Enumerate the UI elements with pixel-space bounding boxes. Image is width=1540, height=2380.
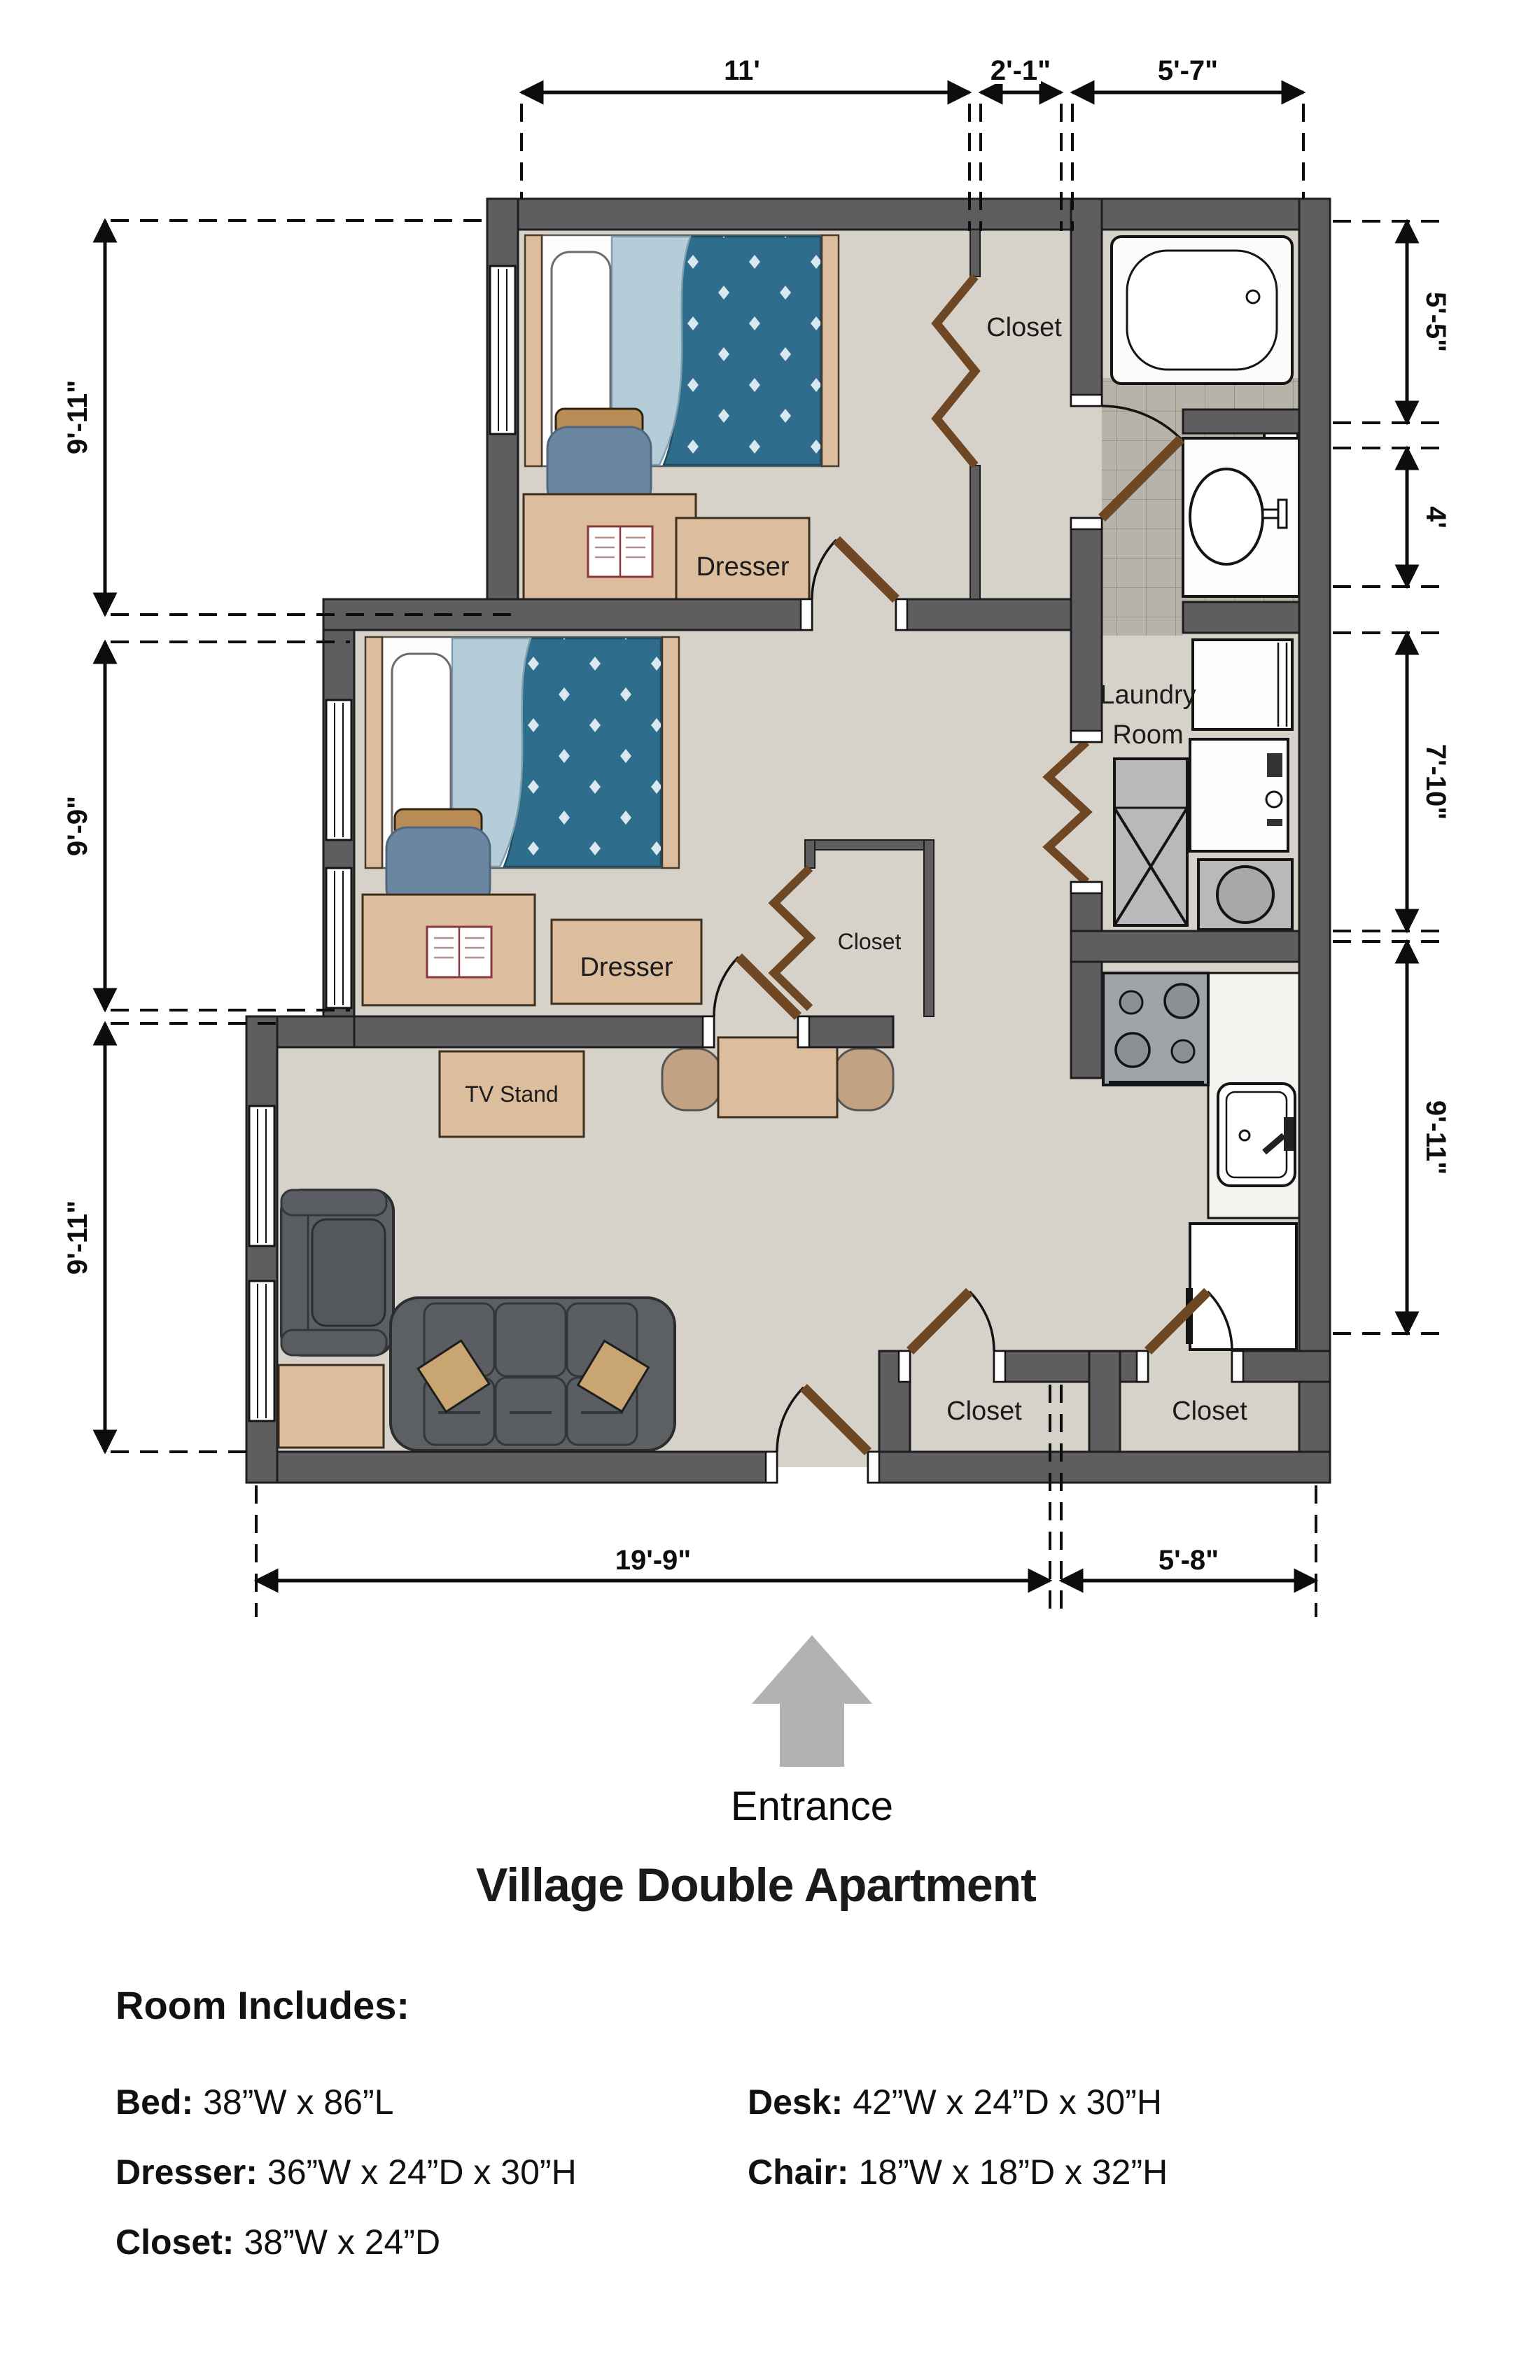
- dim-right-bath: 5'-5": [1420, 292, 1451, 352]
- dresser-bedroom1-label: Dresser: [696, 552, 789, 582]
- entrance: Entrance: [731, 1635, 893, 1829]
- legend-item-value: 18”W x 18”D x 32”H: [858, 2152, 1168, 2192]
- armchair: [281, 1190, 393, 1355]
- dresser-bedroom2-label: Dresser: [580, 953, 673, 982]
- bathtub-drain: [1247, 290, 1259, 303]
- wall-top: [490, 199, 1330, 230]
- wall-toilet-divider: [1183, 409, 1299, 433]
- laundry-label-line2: Room: [1112, 720, 1183, 750]
- dim-right-laundry: 7'-10": [1420, 744, 1451, 820]
- wall-bedroom2-living-b: [798, 1016, 893, 1047]
- legend-heading: Room Includes:: [115, 1983, 409, 2027]
- door-jamb: [1071, 731, 1102, 742]
- wall-closet-bedroom2-right: [924, 840, 934, 1016]
- legend-item-value: 38”W x 24”D: [244, 2222, 440, 2262]
- dining-chair-right: [834, 1049, 893, 1110]
- wall-closet-divider: [1089, 1351, 1120, 1452]
- wall-spine-stub: [1071, 962, 1102, 1078]
- door-jamb: [1232, 1351, 1243, 1382]
- tv-stand-label: TV Stand: [465, 1081, 558, 1107]
- window: [249, 1281, 274, 1421]
- legend-item-label: Dresser:: [115, 2152, 258, 2192]
- door-jamb: [896, 599, 907, 630]
- laundry-appliance: [1193, 640, 1292, 729]
- dining-table: [718, 1037, 837, 1117]
- utility-unit: [1114, 759, 1187, 925]
- page-title: Village Double Apartment: [476, 1858, 1036, 1912]
- dim-bottom-main: 19'-9": [615, 1545, 692, 1576]
- legend-item-bed: Bed:38”W x 86”L: [115, 2082, 393, 2122]
- closet-bedroom2-label: Closet: [838, 929, 902, 954]
- entrance-arrow-icon: [752, 1635, 872, 1767]
- vanity-sink: [1190, 469, 1263, 564]
- door-jamb: [703, 1016, 714, 1047]
- dim-top-bath: 5'-7": [1158, 55, 1218, 86]
- armchair-arm-top: [281, 1190, 386, 1215]
- legend-item-closet: Closet:38”W x 24”D: [115, 2222, 440, 2262]
- wall-spine-a: [1071, 199, 1102, 406]
- dim-bottom-kitchen: 5'-8": [1158, 1545, 1219, 1576]
- dim-left-bedroom2: 9'-9": [62, 796, 93, 856]
- legend-item-value: 36”W x 24”D x 30”H: [267, 2152, 577, 2192]
- text-block: Village Double Apartment Room Includes: …: [115, 1858, 1168, 2262]
- wall-closet-bedroom2-stub: [805, 840, 815, 868]
- laundry-label-line1: Laundry: [1100, 680, 1196, 710]
- door-jamb: [899, 1351, 910, 1382]
- refrigerator: [1190, 1224, 1296, 1350]
- dining-chair-left: [662, 1049, 721, 1110]
- wall-right: [1299, 199, 1330, 1483]
- washer-knob: [1266, 792, 1282, 807]
- bedroom1-furniture: [524, 235, 839, 605]
- wall-bottom-right: [868, 1452, 1330, 1483]
- wall-bedrooms-divider-a: [323, 599, 812, 630]
- closet-top-label: Closet: [986, 313, 1062, 342]
- door-jamb: [1071, 518, 1102, 529]
- door-jamb: [798, 1016, 809, 1047]
- sofa-back-cushion: [496, 1303, 566, 1376]
- vanity-faucet-handle: [1278, 500, 1287, 528]
- floor-plan: Closet Laundry Room Closet Closet Closet…: [0, 0, 1540, 2380]
- dim-left-bedroom1: 9'-11": [62, 380, 93, 454]
- wall-vanity-laundry: [1183, 602, 1299, 633]
- door-jamb: [801, 599, 812, 630]
- wall-closet-top-a: [994, 1351, 1089, 1382]
- legend-item-desk: Desk:42”W x 24”D x 30”H: [748, 2082, 1162, 2122]
- wall-closet-top-bedroom1-a: [970, 230, 980, 276]
- legend-item-label: Bed:: [115, 2082, 193, 2122]
- window: [326, 868, 351, 1008]
- wall-laundry-kitchen: [1071, 931, 1299, 962]
- bedroom2-furniture: [363, 637, 701, 1005]
- stove-burner: [1165, 984, 1198, 1018]
- legend-item-value: 38”W x 86”L: [203, 2082, 393, 2122]
- legend-item-dresser: Dresser:36”W x 24”D x 30”H: [115, 2152, 577, 2192]
- closet-entry-right-label: Closet: [1172, 1396, 1247, 1426]
- kitchen-sink: [1218, 1084, 1295, 1186]
- door-jamb: [766, 1452, 777, 1483]
- legend-item-value: 42”W x 24”D x 30”H: [853, 2082, 1162, 2122]
- side-table: [279, 1365, 384, 1448]
- wall-bottom-left: [246, 1452, 777, 1483]
- entrance-label: Entrance: [731, 1784, 893, 1829]
- sofa: [391, 1298, 675, 1450]
- washer-latch: [1267, 753, 1282, 777]
- dim-left-living: 9'-11": [62, 1200, 93, 1275]
- wall-closet-top-c: [1232, 1351, 1330, 1382]
- dryer-drum: [1217, 867, 1273, 923]
- legend-item-label: Chair:: [748, 2152, 848, 2192]
- dim-top-bedroom1: 11': [724, 55, 760, 86]
- wall-closet-top-bedroom1-b: [970, 465, 980, 599]
- bathtub-basin: [1127, 251, 1277, 370]
- wall-bedroom2-living-a: [354, 1016, 714, 1047]
- door-jamb: [1137, 1351, 1148, 1382]
- closet-entry-left-label: Closet: [946, 1396, 1022, 1426]
- window: [326, 700, 351, 840]
- armchair-arm-bottom: [281, 1330, 386, 1355]
- dim-right-kitchen: 9'-11": [1420, 1100, 1451, 1175]
- bathroom-tile-strip-grid: [1102, 602, 1183, 636]
- armchair-seat: [312, 1219, 385, 1326]
- stove-burner: [1120, 991, 1142, 1014]
- door-jamb: [868, 1452, 879, 1483]
- kitchen-faucet: [1284, 1117, 1294, 1151]
- wall-closet-bedroom2-top: [805, 840, 934, 850]
- legend-item-chair: Chair:18”W x 18”D x 32”H: [748, 2152, 1168, 2192]
- door-jamb: [1071, 395, 1102, 406]
- legend-item-label: Closet:: [115, 2222, 234, 2262]
- dim-right-vanity: 4': [1420, 506, 1451, 528]
- window: [249, 1106, 274, 1246]
- stove-burner: [1172, 1040, 1194, 1063]
- door-jamb: [994, 1351, 1005, 1382]
- washer-hinge: [1267, 819, 1282, 826]
- wall-spine-b: [1071, 518, 1102, 742]
- window: [490, 266, 515, 434]
- stove-handle: [1109, 1081, 1204, 1086]
- legend-item-label: Desk:: [748, 2082, 843, 2122]
- door-jamb: [1071, 882, 1102, 893]
- dim-top-closet: 2'-1": [990, 55, 1051, 86]
- stove-burner: [1116, 1033, 1149, 1067]
